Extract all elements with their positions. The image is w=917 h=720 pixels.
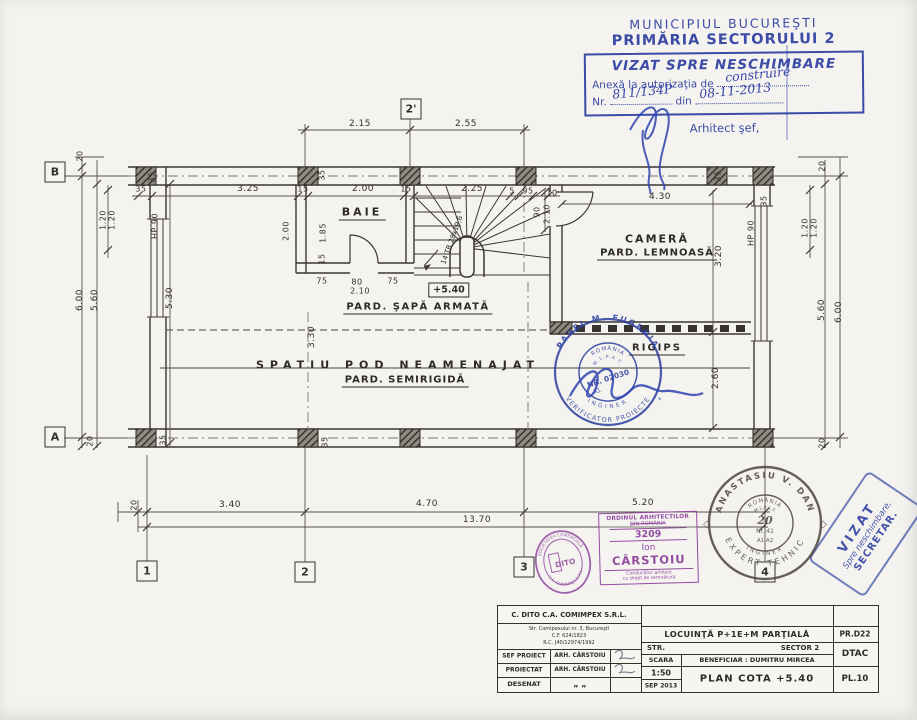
date-dotted-line: 08-11-2013 <box>695 93 783 104</box>
label-rigips: RIGIPS <box>629 343 685 354</box>
tb-divider <box>498 623 641 624</box>
tb-divider <box>550 649 551 692</box>
tb-phase: DTAC <box>842 649 868 659</box>
tb-scale-label: SCARA <box>649 656 674 664</box>
tb-divider <box>641 626 878 627</box>
nr-dotted-line: 811/134P <box>610 95 672 106</box>
approval-stamp: MUNICIPIUL BUCUREŞTI PRIMĂRIA SECTORULUI… <box>577 14 870 136</box>
tb-project-title: LOCUINŢĂ P+1E+M PARŢIALĂ <box>664 629 809 639</box>
tb-company: C. DITO C.A. COMIMPEX S.R.L. <box>511 611 626 619</box>
tb-divider <box>641 666 878 667</box>
tb-divider <box>498 677 641 678</box>
level-marker: +5.40 <box>428 285 469 296</box>
tb-divider <box>641 654 833 655</box>
tb-address: Str. Comipexului nr. 3, Bucureşti <box>529 626 609 632</box>
tb-sheet-title: PLAN COTA +5.40 <box>700 674 814 685</box>
stamp-municipality: MUNICIPIUL BUCUREŞTI <box>577 14 869 32</box>
room-label-attic: SPATIU POD NEAMENAJAT <box>256 359 540 372</box>
tb-row-label: SEF PROIECT <box>502 653 546 660</box>
tb-divider <box>610 649 611 692</box>
tb-row-label: DESENAT <box>507 680 540 688</box>
floor-note-semirigida: PARD. SEMIRIGIDĂ <box>342 375 469 386</box>
architect-last-name: CÂRSTOIU <box>600 552 697 569</box>
architects-order-stamp: ORDINUL ARHITECTILOR DIN ROMÂNIA 3209 Io… <box>598 511 699 586</box>
tb-project-code: PR.D22 <box>840 630 871 639</box>
order-number: 3209 <box>609 527 686 542</box>
tb-divider <box>641 679 681 680</box>
blueprint-page: 2.152.55353.25152.00152.25595104.3035353… <box>0 0 917 720</box>
tb-row-label: PROIECTAT <box>506 667 543 674</box>
nr-label: Nr. <box>592 96 607 108</box>
floor-note-sapa: PARD. ŞAPĂ ARMATĂ <box>343 302 492 313</box>
tb-street-label: STR. <box>647 644 665 652</box>
room-label-camera-floor: PARD. LEMNOASĂ <box>597 248 717 259</box>
tb-row-value: „ „ <box>573 680 586 689</box>
stamp-number-row: Nr. 811/134P din 08-11-2013 <box>592 93 856 109</box>
tb-divider <box>833 606 834 692</box>
tb-divider <box>641 642 878 643</box>
tb-divider <box>498 649 641 650</box>
room-label-camera: CAMERĂ <box>625 233 689 246</box>
tb-scale: 1:50 <box>651 668 671 677</box>
tb-row-value: ARH. CÂRSTOIU <box>554 667 605 673</box>
tb-row-value: ARH. CÂRSTOIU <box>554 653 605 659</box>
tb-sheet-number: PL.10 <box>842 674 869 684</box>
tb-divider <box>681 654 682 692</box>
tb-date: SEP 2013 <box>645 682 678 689</box>
room-label-baie: BAIE <box>339 206 386 219</box>
din-label: din <box>675 95 691 107</box>
tb-cf: C.F. 624/1823 <box>552 633 586 639</box>
tb-beneficiary: BENEFICIAR : DUMITRU MIRCEA <box>699 656 814 664</box>
tb-rc: R.C. J40/12974/1992 <box>543 640 594 646</box>
stamp-cityhall: PRIMĂRIA SECTORULUI 2 <box>578 30 870 49</box>
title-block: C. DITO C.A. COMIMPEX S.R.L. Str. Comipe… <box>497 605 879 693</box>
stair-note: 14 TR 28x19,6 <box>439 215 464 266</box>
tb-sector: SECTOR 2 <box>781 644 819 652</box>
stamp-box: VIZAT SPRE NESCHIMBARE Anexă la autoriza… <box>584 51 865 117</box>
tb-divider <box>498 663 641 664</box>
